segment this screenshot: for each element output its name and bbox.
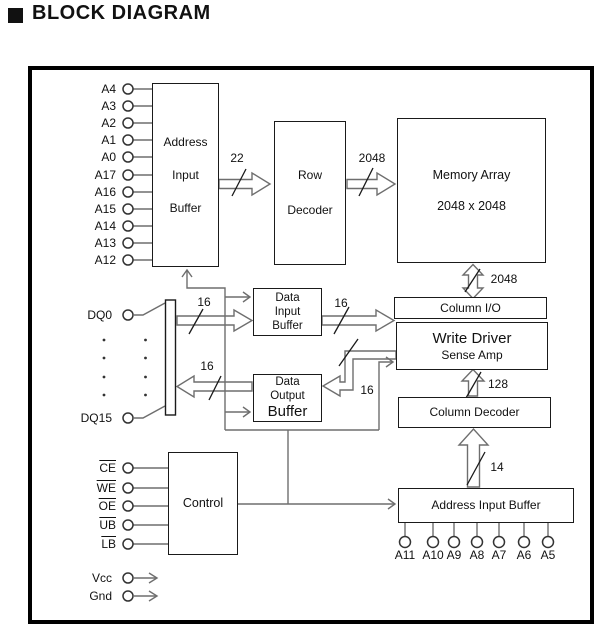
block-label: Address Input Buffer bbox=[431, 499, 540, 512]
block-label: Column Decoder bbox=[429, 406, 519, 419]
block-label: Decoder bbox=[287, 204, 332, 217]
bus-width-label-22: 22 bbox=[230, 151, 243, 165]
block-label: Data bbox=[275, 376, 299, 389]
pin-label-a16: A16 bbox=[58, 184, 116, 200]
block-label: Column I/O bbox=[440, 302, 501, 315]
pin-label-gnd: Gnd bbox=[56, 588, 112, 604]
block-label: Buffer bbox=[268, 404, 308, 420]
pin-label-dq0: DQ0 bbox=[50, 307, 112, 323]
pin-label-a12: A12 bbox=[58, 252, 116, 268]
bus-width-label-16-wd: 16 bbox=[334, 296, 347, 310]
pin-label-oe: OE bbox=[58, 498, 116, 514]
block-column-io: Column I/O bbox=[394, 297, 547, 319]
pin-label-a2: A2 bbox=[58, 115, 116, 131]
block-label: Data bbox=[275, 292, 299, 305]
block-address-input-buffer-top: Address Input Buffer bbox=[152, 83, 219, 267]
bus-width-label-128: 128 bbox=[488, 377, 508, 391]
block-row-decoder: Row Decoder bbox=[274, 121, 346, 265]
block-label: Input bbox=[275, 306, 301, 319]
block-label: Buffer bbox=[170, 202, 202, 215]
bus-arrow-14 bbox=[459, 429, 488, 487]
pin-label-a3: A3 bbox=[58, 98, 116, 114]
block-write-driver-sense-amp: Write Driver Sense Amp bbox=[396, 322, 548, 370]
power-pin-arrows bbox=[134, 573, 157, 601]
block-control: Control bbox=[168, 452, 238, 555]
pin-label-a14: A14 bbox=[58, 218, 116, 234]
block-data-input-buffer: Data Input Buffer bbox=[253, 288, 322, 336]
pin-label-a1: A1 bbox=[58, 132, 116, 148]
block-label: Sense Amp bbox=[441, 349, 502, 362]
block-label: Row bbox=[298, 169, 322, 182]
pin-label-dq15: DQ15 bbox=[50, 410, 112, 426]
bus-arrow-2048-row-to-memory bbox=[347, 173, 395, 195]
block-label: Input bbox=[172, 169, 199, 182]
block-memory-array: Memory Array 2048 x 2048 bbox=[397, 118, 546, 263]
block-label: Memory Array bbox=[433, 169, 511, 182]
pin-label-vcc: Vcc bbox=[56, 570, 112, 586]
block-label: Buffer bbox=[272, 320, 302, 333]
block-label: Address bbox=[163, 136, 207, 149]
block-address-input-buffer-bottom: Address Input Buffer bbox=[398, 488, 574, 523]
pin-label-a13: A13 bbox=[58, 235, 116, 251]
pin-label-we: WE bbox=[58, 480, 116, 496]
pin-label-a15: A15 bbox=[58, 201, 116, 217]
bus-width-label-14: 14 bbox=[490, 460, 503, 474]
block-data-output-buffer: Data Output Buffer bbox=[253, 374, 322, 422]
bus-arrow-16-dq-to-datain bbox=[177, 310, 252, 331]
block-column-decoder: Column Decoder bbox=[398, 397, 551, 428]
block-label: Output bbox=[270, 390, 305, 403]
pin-label-lb: LB bbox=[58, 536, 116, 552]
pin-label-a5: A5 bbox=[531, 548, 565, 562]
pin-label-ub: UB bbox=[58, 517, 116, 533]
bus-arrow-22 bbox=[219, 173, 270, 195]
bus-width-label-2048-row: 2048 bbox=[359, 151, 386, 165]
dq-ellipsis-dots bbox=[103, 339, 147, 397]
pin-label-a17: A17 bbox=[58, 167, 116, 183]
dq-bus-bar bbox=[166, 300, 176, 415]
bus-width-label-16-in: 16 bbox=[197, 295, 210, 309]
pin-label-a0: A0 bbox=[58, 149, 116, 165]
bus-width-label-16-dq: 16 bbox=[200, 359, 213, 373]
block-label: Control bbox=[183, 497, 223, 510]
pin-label-a4: A4 bbox=[58, 81, 116, 97]
bus-arrow-16-dataout-to-dq bbox=[177, 376, 252, 397]
bus-width-label-2048-col: 2048 bbox=[491, 272, 518, 286]
bus-width-label-16-out: 16 bbox=[360, 383, 373, 397]
block-label: 2048 x 2048 bbox=[437, 200, 506, 213]
block-label: Write Driver bbox=[433, 331, 512, 347]
pin-label-ce: CE bbox=[58, 460, 116, 476]
bus-arrow-16-datain-to-writedriver bbox=[322, 310, 394, 331]
datasheet-page: BLOCK DIAGRAM bbox=[0, 0, 605, 637]
